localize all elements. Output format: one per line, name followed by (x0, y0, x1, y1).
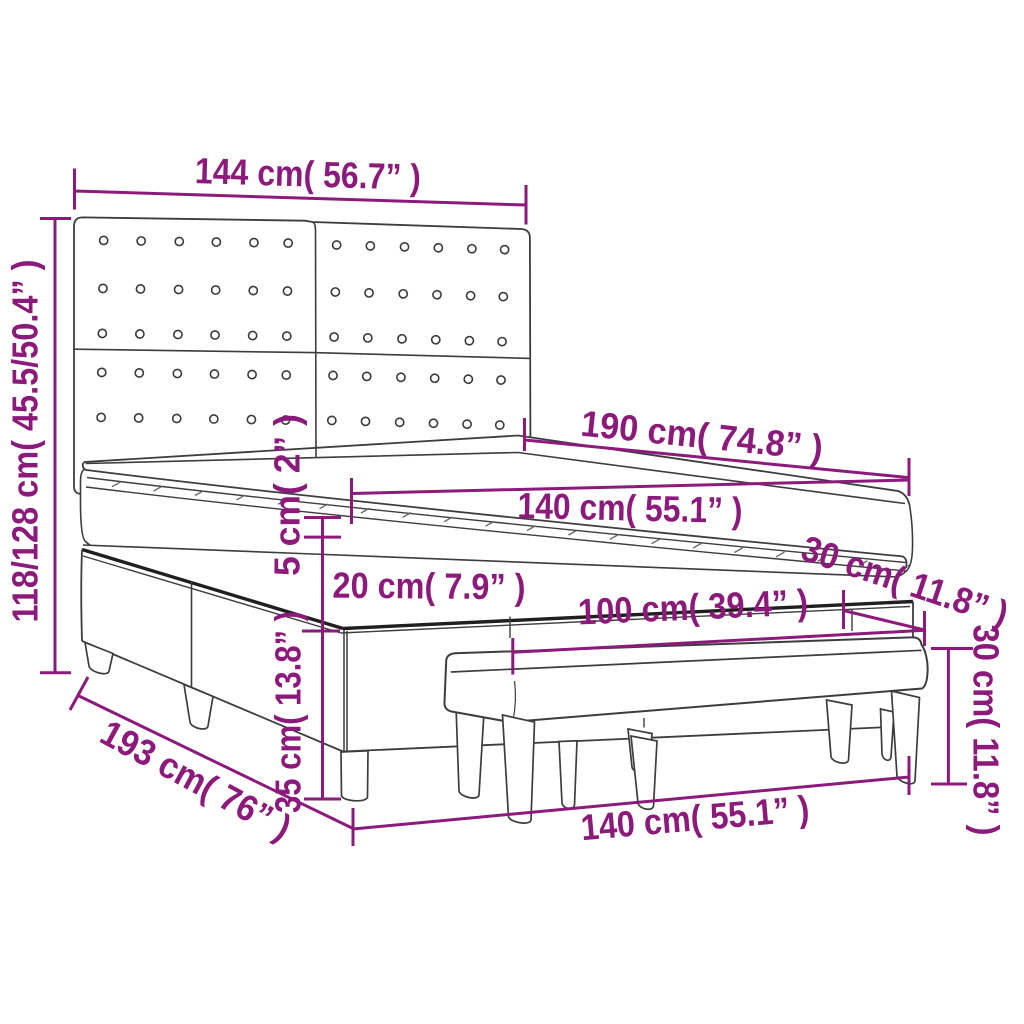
svg-text:118/128 cm( 45.5/50.4” ): 118/128 cm( 45.5/50.4” ) (5, 260, 46, 623)
svg-text:140 cm( 55.1” ): 140 cm( 55.1” ) (517, 485, 743, 531)
svg-text:30 cm( 11.8” ): 30 cm( 11.8” ) (966, 625, 1007, 836)
svg-text:5 cm( 2” ): 5 cm( 2” ) (267, 414, 308, 576)
svg-text:20 cm( 7.9” ): 20 cm( 7.9” ) (332, 565, 525, 608)
svg-text:35 cm( 13.8” ): 35 cm( 13.8” ) (268, 611, 309, 813)
svg-text:144 cm( 56.7” ): 144 cm( 56.7” ) (194, 150, 421, 198)
